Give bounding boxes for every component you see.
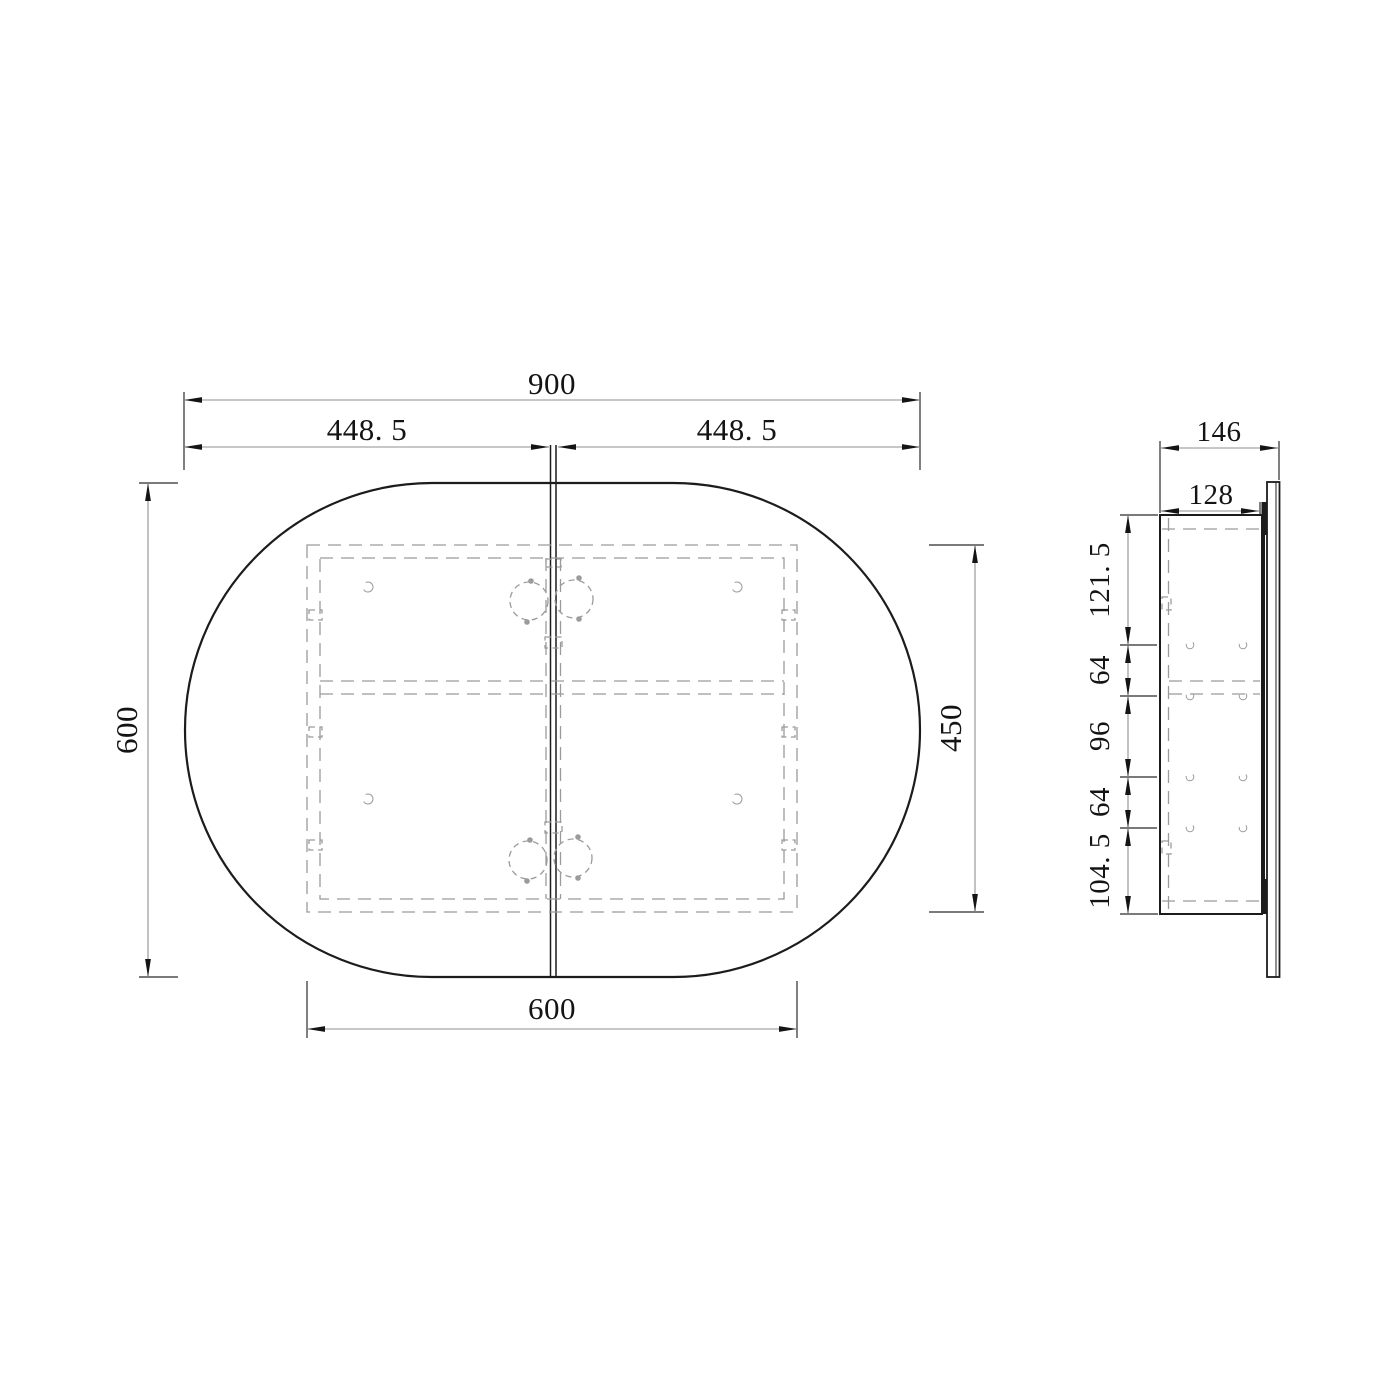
cabinet-box	[1160, 515, 1262, 914]
carcass-hidden-lines	[307, 545, 797, 912]
shelf-pin-holes	[1186, 641, 1247, 832]
dim-cabinet-width-label: 600	[528, 991, 576, 1026]
dim-seg-3-label: 96	[1084, 721, 1116, 751]
dim-right-door-label: 448. 5	[697, 412, 778, 447]
dimension-cabinet-width: 600	[307, 981, 797, 1038]
dim-left-door-label: 448. 5	[327, 412, 408, 447]
dimension-height-chain: 121. 5 64 96 64 104. 5	[1084, 515, 1158, 914]
drawing-canvas: 900 448. 5 448. 5 600 450 600	[0, 0, 1400, 1400]
dimension-cabinet-height: 450	[929, 545, 984, 912]
dimension-right-door: 448. 5	[558, 412, 920, 447]
mirror-door-panel	[1267, 482, 1280, 977]
mirror-outline	[185, 483, 920, 977]
dimension-cabinet-depth: 128	[1161, 479, 1260, 515]
dim-seg-2-label: 64	[1084, 655, 1116, 685]
dim-overall-height-label: 600	[109, 706, 144, 754]
dimension-overall-height: 600	[109, 483, 178, 977]
technical-drawing: 900 448. 5 448. 5 600 450 600	[0, 0, 1400, 1400]
dimension-left-door: 448. 5	[184, 412, 549, 447]
dimension-overall-width: 900	[184, 366, 920, 470]
dim-seg-4-label: 64	[1084, 787, 1116, 817]
dim-seg-1-label: 121. 5	[1084, 542, 1116, 618]
side-view	[1160, 482, 1280, 977]
dim-seg-5-label: 104. 5	[1084, 833, 1116, 909]
dim-cabinet-height-label: 450	[933, 704, 968, 752]
front-view	[185, 445, 920, 977]
dim-overall-depth-label: 146	[1197, 416, 1242, 448]
dim-cabinet-depth-label: 128	[1189, 479, 1234, 511]
dim-overall-width-label: 900	[528, 366, 576, 401]
mounting-holes	[363, 582, 742, 804]
side-hidden-lines	[1162, 518, 1260, 911]
